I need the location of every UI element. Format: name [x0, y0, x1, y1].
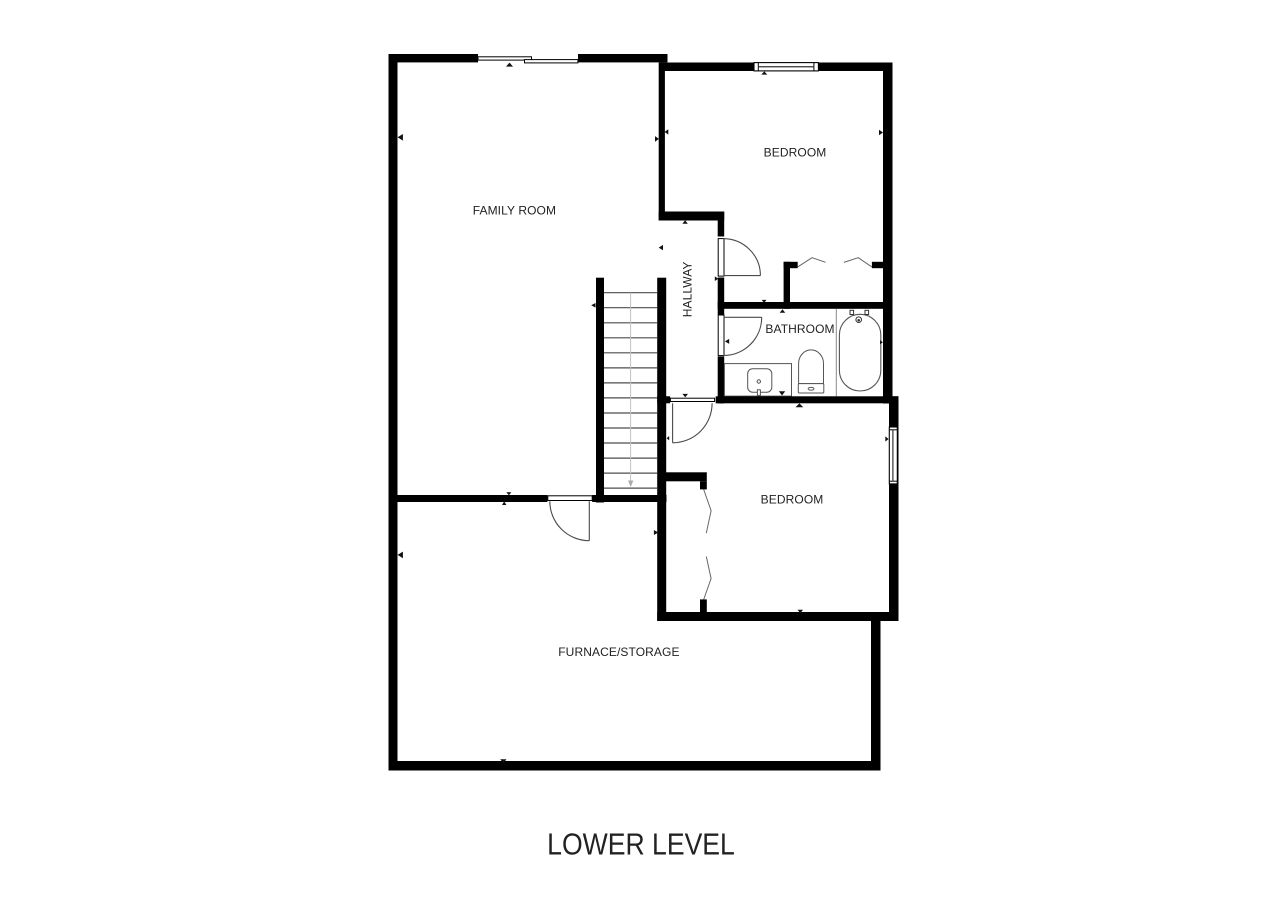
svg-text:FURNACE/STORAGE: FURNACE/STORAGE	[558, 645, 679, 659]
svg-text:BEDROOM: BEDROOM	[761, 493, 824, 507]
svg-text:BEDROOM: BEDROOM	[764, 146, 827, 160]
svg-text:LOWER LEVEL: LOWER LEVEL	[547, 828, 735, 862]
svg-text:HALLWAY: HALLWAY	[681, 261, 695, 317]
svg-text:FAMILY ROOM: FAMILY ROOM	[473, 204, 556, 218]
svg-text:BATHROOM: BATHROOM	[765, 322, 834, 336]
